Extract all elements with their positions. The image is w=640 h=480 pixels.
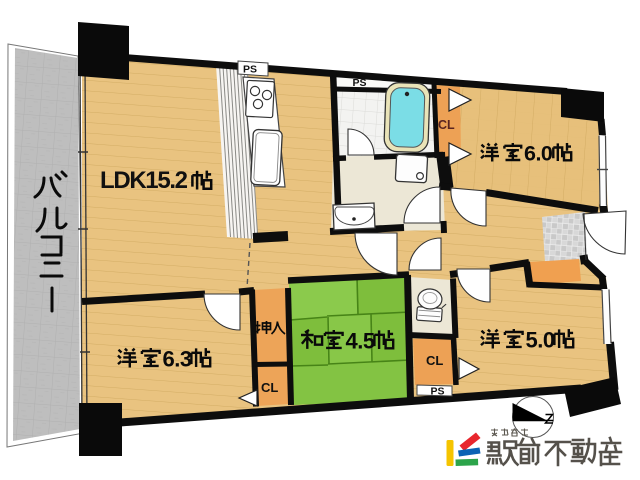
svg-text:6.3: 6.3 [163, 347, 192, 372]
svg-text:LDK15.2: LDK15.2 [100, 167, 188, 194]
svg-text:5.0: 5.0 [526, 328, 555, 353]
svg-text:PS: PS [243, 64, 257, 76]
svg-text:CL: CL [261, 380, 278, 395]
svg-text:6.0: 6.0 [524, 142, 553, 166]
svg-text:4.5: 4.5 [346, 329, 375, 354]
svg-text:CL: CL [426, 353, 443, 368]
svg-text:PS: PS [353, 77, 367, 89]
svg-text:CL: CL [438, 118, 455, 132]
svg-text:PS: PS [431, 386, 445, 398]
